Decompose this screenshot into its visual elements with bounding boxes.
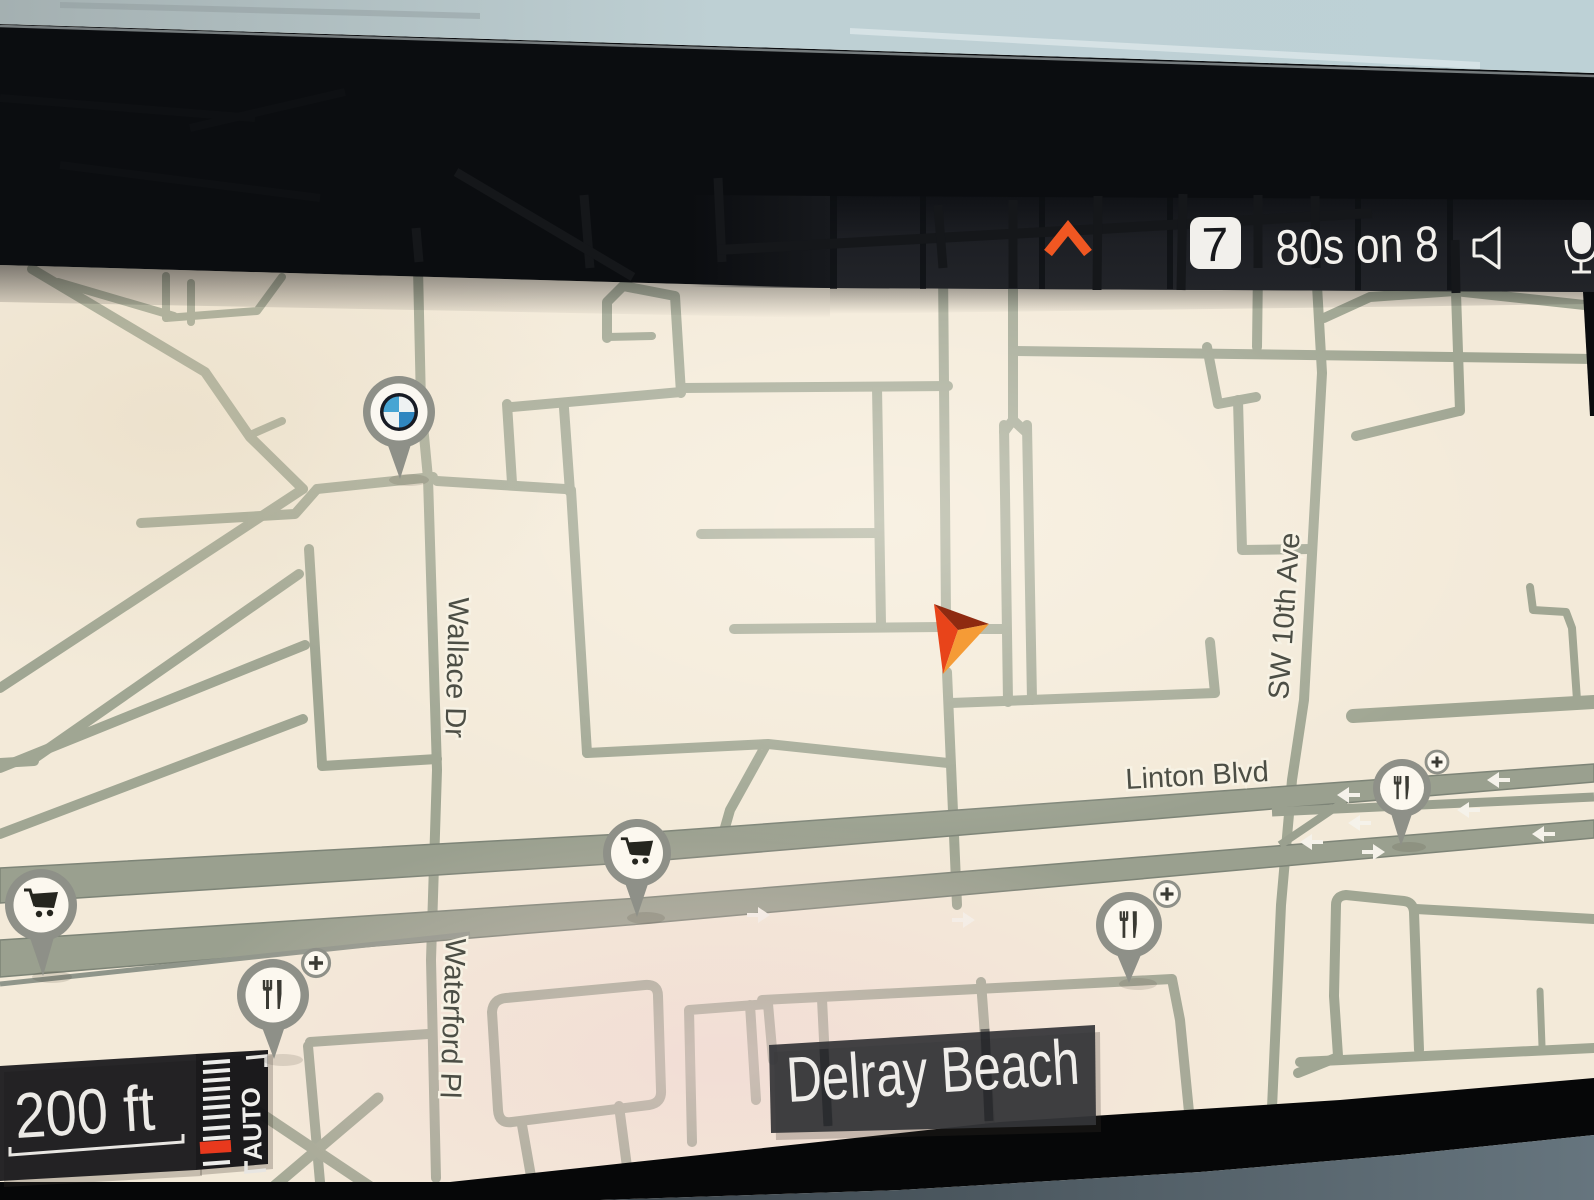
svg-text:Waterford Pl: Waterford Pl [433,938,471,1099]
svg-text:80s on 8: 80s on 8 [1275,216,1439,276]
svg-text:200 ft: 200 ft [12,1072,156,1152]
svg-text:Wallace Dr: Wallace Dr [438,597,474,739]
svg-text:7: 7 [1201,219,1229,272]
svg-text:AUTO: AUTO [235,1087,268,1161]
